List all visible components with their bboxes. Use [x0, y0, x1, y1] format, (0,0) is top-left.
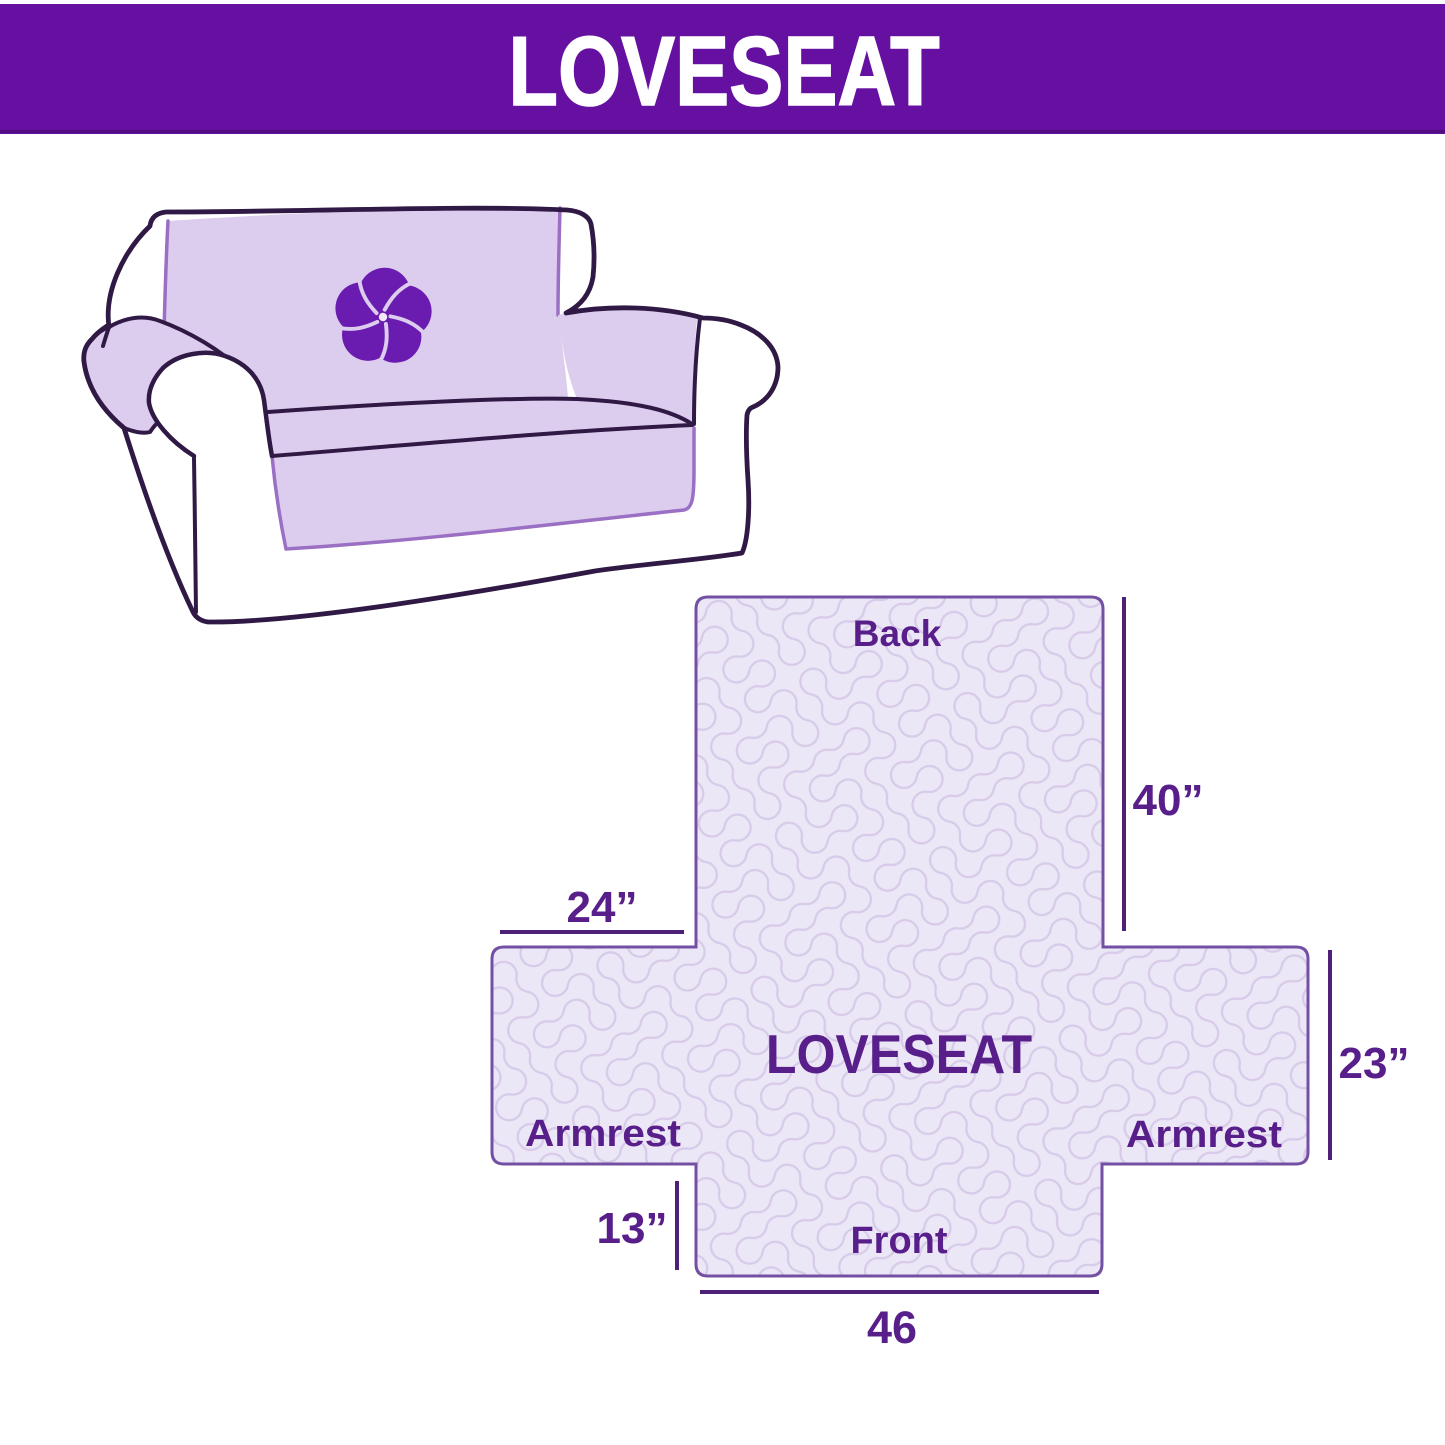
svg-text:Armrest: Armrest [525, 1112, 681, 1154]
svg-text:LOVESEAT: LOVESEAT [508, 18, 939, 127]
svg-text:23”: 23” [1339, 1039, 1410, 1088]
svg-text:24”: 24” [567, 883, 638, 932]
svg-text:46: 46 [867, 1302, 917, 1353]
svg-text:13”: 13” [597, 1204, 668, 1253]
svg-text:Armrest: Armrest [1126, 1113, 1282, 1155]
svg-text:Back: Back [853, 613, 942, 654]
svg-text:LOVESEAT: LOVESEAT [766, 1024, 1032, 1086]
svg-text:Front: Front [850, 1220, 947, 1262]
svg-text:40”: 40” [1133, 776, 1204, 825]
